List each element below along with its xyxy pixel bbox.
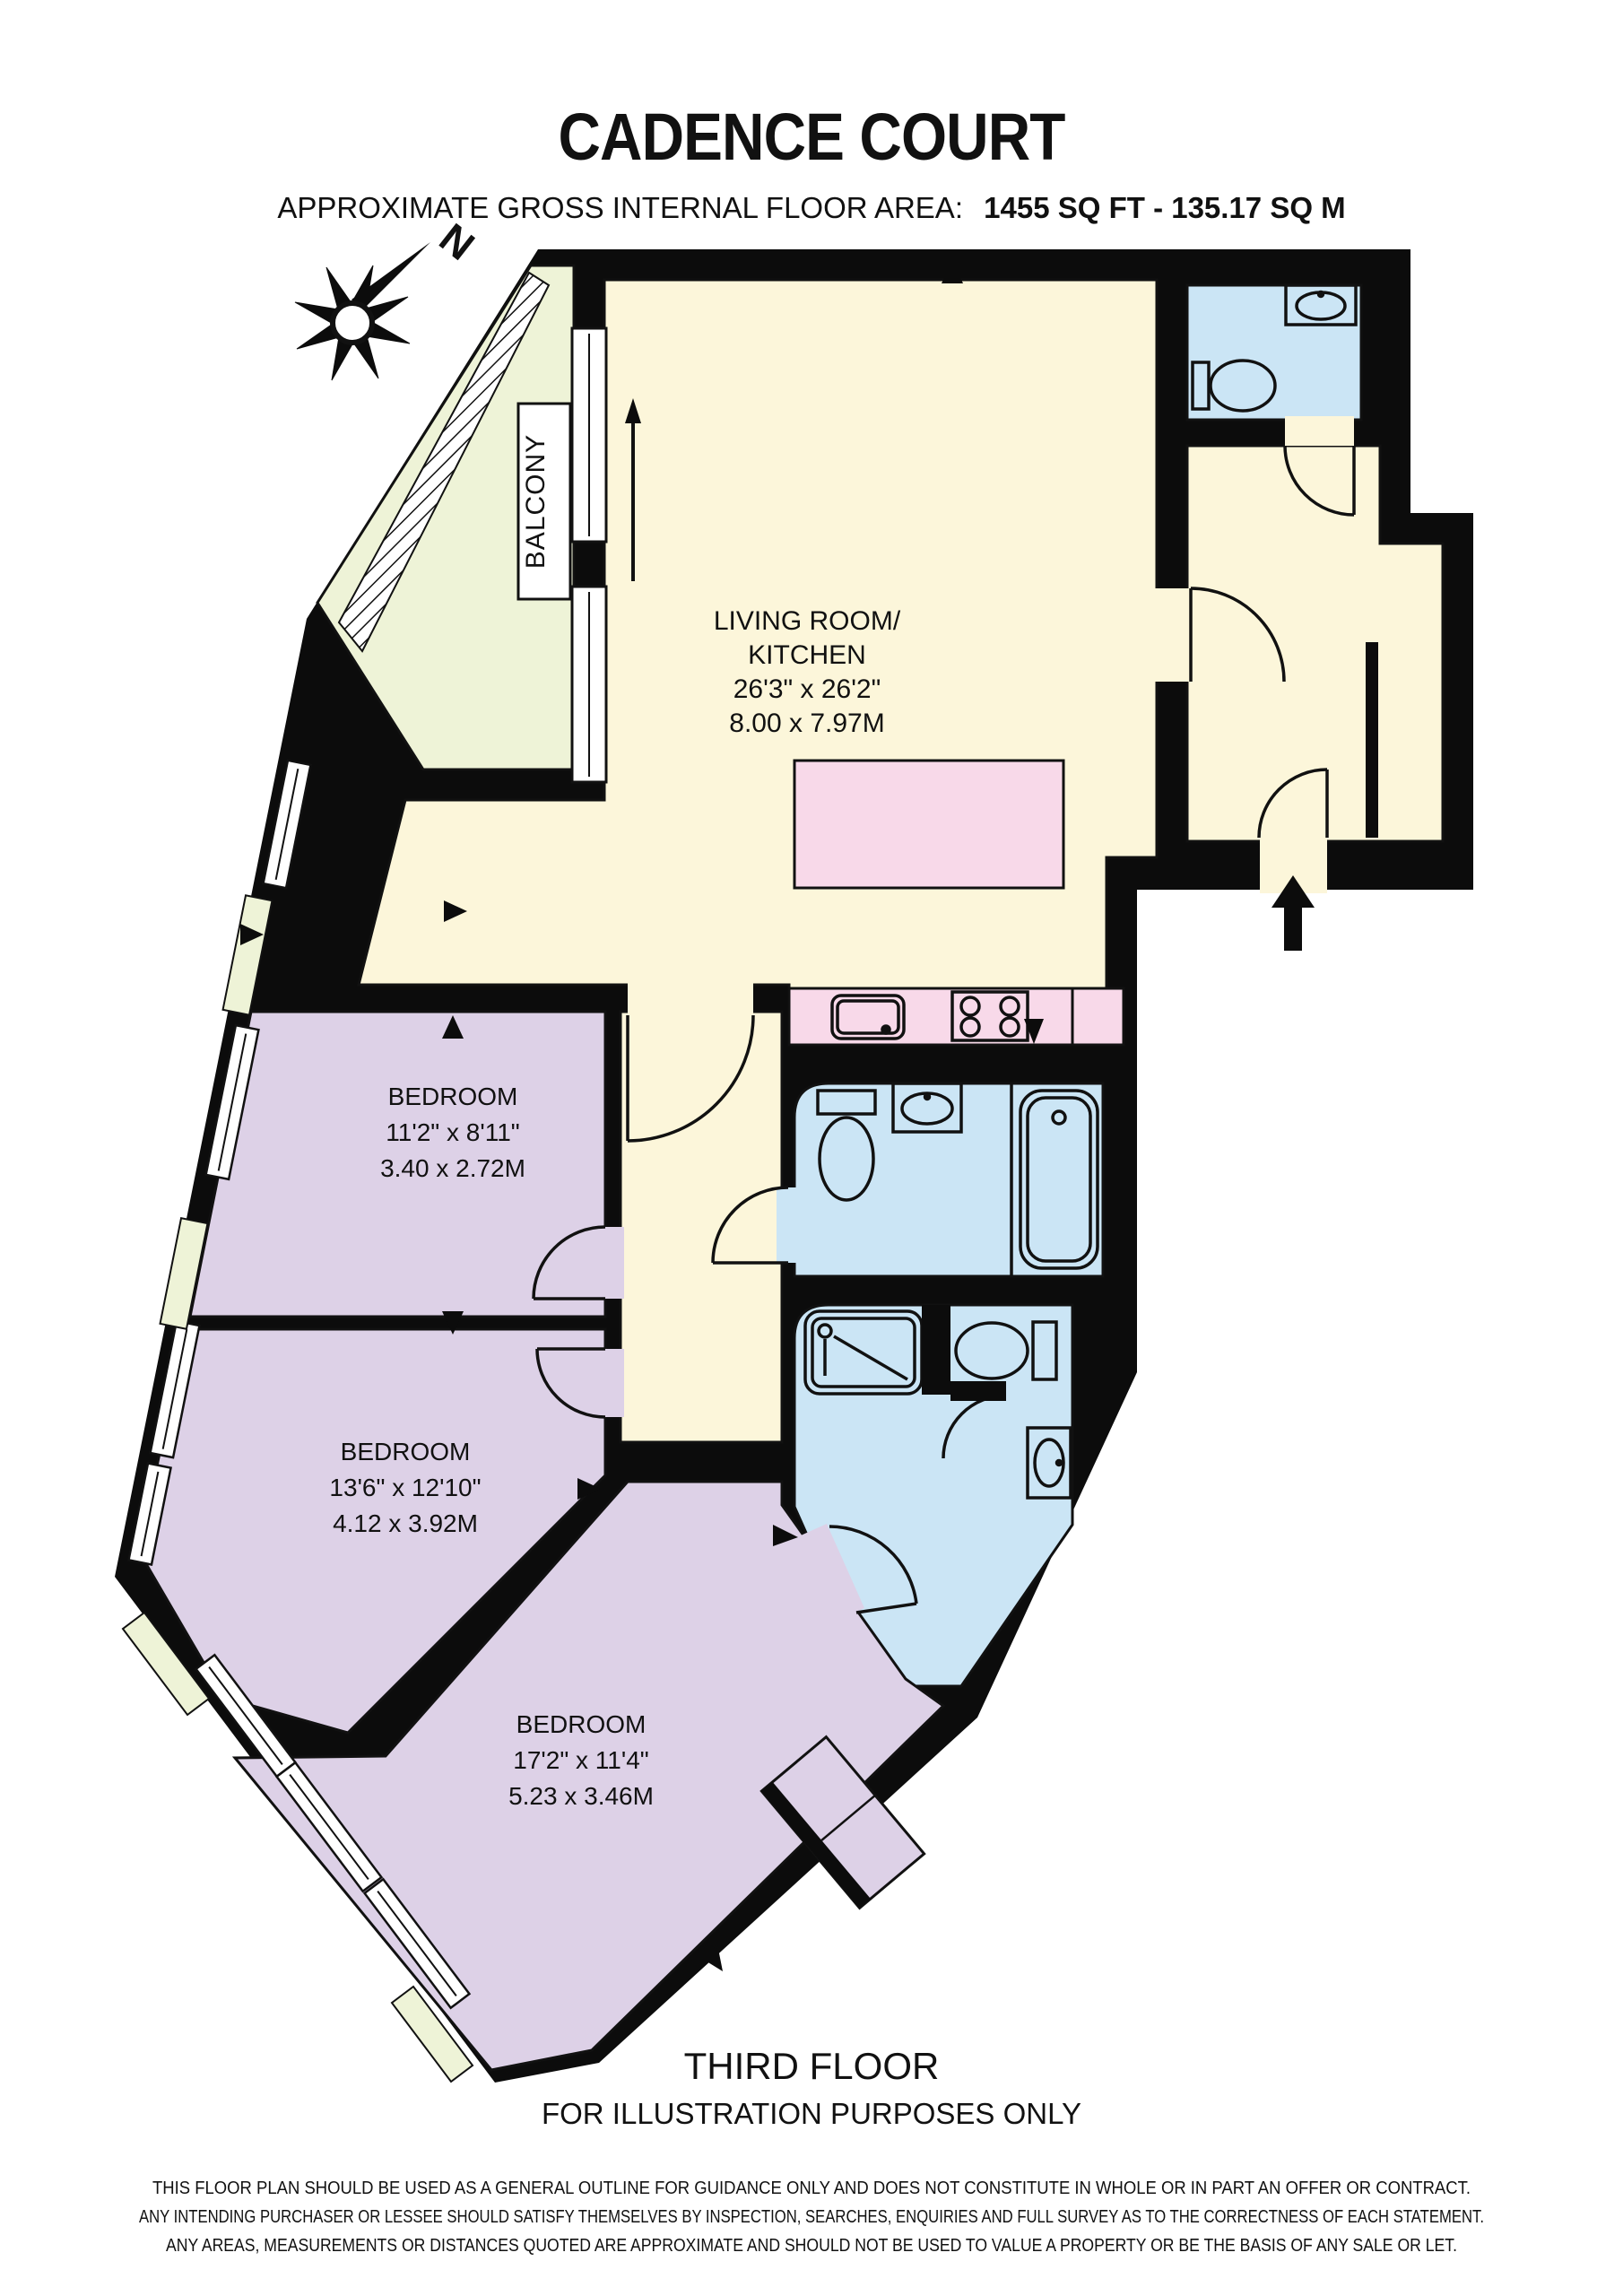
bedroom1-dims-m: 3.40 x 2.72M bbox=[380, 1154, 525, 1182]
floor-label: THIRD FLOOR bbox=[684, 2045, 940, 2087]
bedroom2-dims-ft: 13'6" x 12'10" bbox=[329, 1474, 481, 1501]
kitchen-island bbox=[794, 761, 1063, 888]
area-line: APPROXIMATE GROSS INTERNAL FLOOR AREA: 1… bbox=[277, 191, 1345, 224]
floorplan-page: CADENCE COURT APPROXIMATE GROSS INTERNAL… bbox=[0, 0, 1623, 2296]
compass-icon: N bbox=[295, 214, 483, 380]
bedroom1-label: BEDROOM bbox=[388, 1083, 518, 1110]
disclaimer-line-1: THIS FLOOR PLAN SHOULD BE USED AS A GENE… bbox=[152, 2179, 1471, 2198]
balcony-label: BALCONY bbox=[521, 434, 551, 569]
disclaimer-line-3: ANY AREAS, MEASUREMENTS OR DISTANCES QUO… bbox=[166, 2236, 1457, 2256]
disclaimer-line-2: ANY INTENDING PURCHASER OR LESSEE SHOULD… bbox=[139, 2207, 1484, 2227]
hall-closet-partition bbox=[1366, 642, 1378, 838]
corridor bbox=[621, 1012, 782, 1442]
bedroom1-dims-ft: 11'2" x 8'11" bbox=[386, 1118, 519, 1146]
living-label-1: LIVING ROOM/ bbox=[714, 606, 901, 636]
illustration-note: FOR ILLUSTRATION PURPOSES ONLY bbox=[542, 2097, 1081, 2130]
bedroom3-dims-ft: 17'2" x 11'4" bbox=[513, 1746, 648, 1774]
floorplan-canvas: CADENCE COURT APPROXIMATE GROSS INTERNAL… bbox=[0, 0, 1623, 2296]
bedroom2-label: BEDROOM bbox=[341, 1438, 471, 1465]
living-dims-ft: 26'3" x 26'2" bbox=[733, 674, 881, 704]
area-value: 1455 SQ FT - 135.17 SQ M bbox=[984, 191, 1346, 224]
living-dims-m: 8.00 x 7.97M bbox=[729, 709, 884, 738]
bedroom2-dims-m: 4.12 x 3.92M bbox=[333, 1509, 478, 1537]
page-title: CADENCE COURT bbox=[559, 100, 1066, 174]
bedroom3-dims-m: 5.23 x 3.46M bbox=[508, 1782, 654, 1810]
bedroom3-label: BEDROOM bbox=[516, 1710, 647, 1738]
living-label-2: KITCHEN bbox=[748, 640, 866, 670]
wc-room bbox=[1187, 285, 1361, 420]
area-label: APPROXIMATE GROSS INTERNAL FLOOR AREA: bbox=[277, 191, 963, 224]
